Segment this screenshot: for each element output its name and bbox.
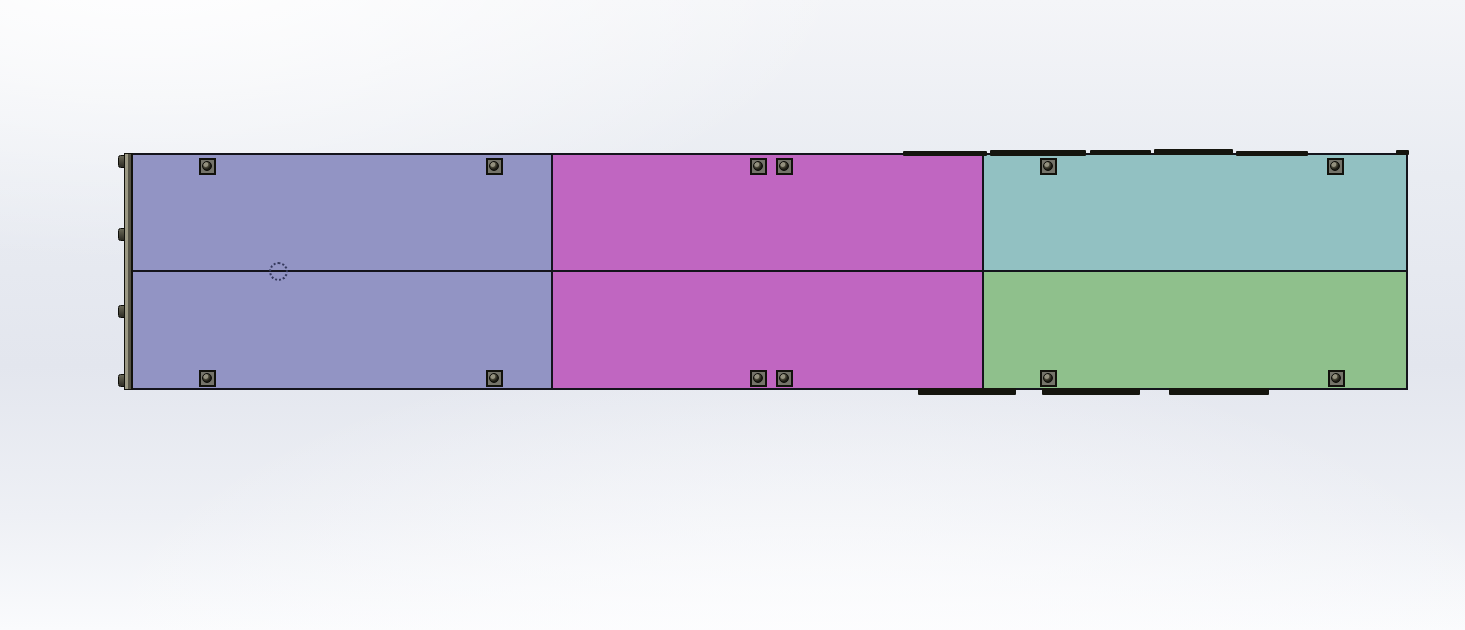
screw-fastener[interactable] — [1040, 158, 1057, 175]
screw-fastener[interactable] — [199, 370, 216, 387]
bottom-edge-strip — [1169, 388, 1269, 395]
top-right-corner-step — [1396, 150, 1409, 155]
bottom-edge-strip — [1042, 388, 1140, 395]
screw-fastener[interactable] — [199, 158, 216, 175]
top-edge-strip — [1236, 151, 1308, 156]
top-edge-strip — [990, 150, 1086, 156]
screw-fastener[interactable] — [486, 158, 503, 175]
screw-fastener[interactable] — [776, 158, 793, 175]
cad-viewport — [0, 0, 1465, 630]
panel-top-middle-face[interactable] — [553, 155, 982, 270]
panel-bottom-middle-face[interactable] — [553, 272, 982, 388]
left-mounting-rail[interactable] — [124, 153, 133, 390]
hidden-line-hole-circle — [269, 262, 288, 281]
top-edge-strip — [1154, 149, 1233, 155]
screw-fastener[interactable] — [776, 370, 793, 387]
screw-fastener[interactable] — [750, 158, 767, 175]
enclosure-assembly — [131, 153, 1408, 390]
screw-fastener[interactable] — [1327, 158, 1344, 175]
top-edge-strip — [1090, 150, 1151, 155]
screw-fastener[interactable] — [486, 370, 503, 387]
screw-fastener[interactable] — [1040, 370, 1057, 387]
top-edge-strip — [903, 151, 987, 156]
screw-fastener[interactable] — [750, 370, 767, 387]
bottom-edge-strip — [918, 388, 1016, 395]
screw-fastener[interactable] — [1328, 370, 1345, 387]
